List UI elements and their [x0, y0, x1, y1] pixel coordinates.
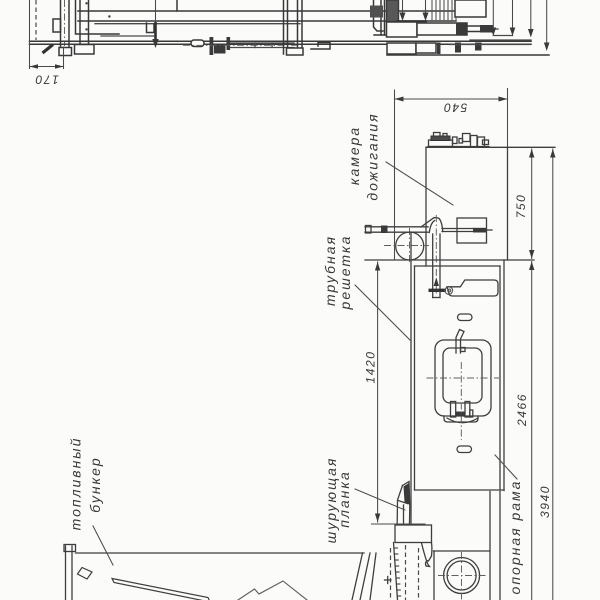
svg-text:1420: 1420	[364, 350, 378, 383]
svg-text:опорная рама: опорная рама	[507, 480, 523, 595]
svg-text:750: 750	[514, 194, 528, 219]
svg-text:540: 540	[443, 100, 468, 114]
svg-text:трубная: трубная	[322, 235, 338, 306]
svg-text:топливный: топливный	[68, 437, 84, 531]
svg-text:камера: камера	[346, 126, 362, 185]
svg-text:решетка: решетка	[337, 235, 353, 311]
svg-text:2466: 2466	[515, 393, 529, 427]
svg-text:170: 170	[34, 72, 59, 86]
svg-text:3940: 3940	[538, 485, 552, 518]
svg-text:планка: планка	[336, 470, 352, 528]
svg-text:бункер: бункер	[87, 456, 103, 512]
svg-text:дожигания: дожигания	[365, 112, 381, 200]
